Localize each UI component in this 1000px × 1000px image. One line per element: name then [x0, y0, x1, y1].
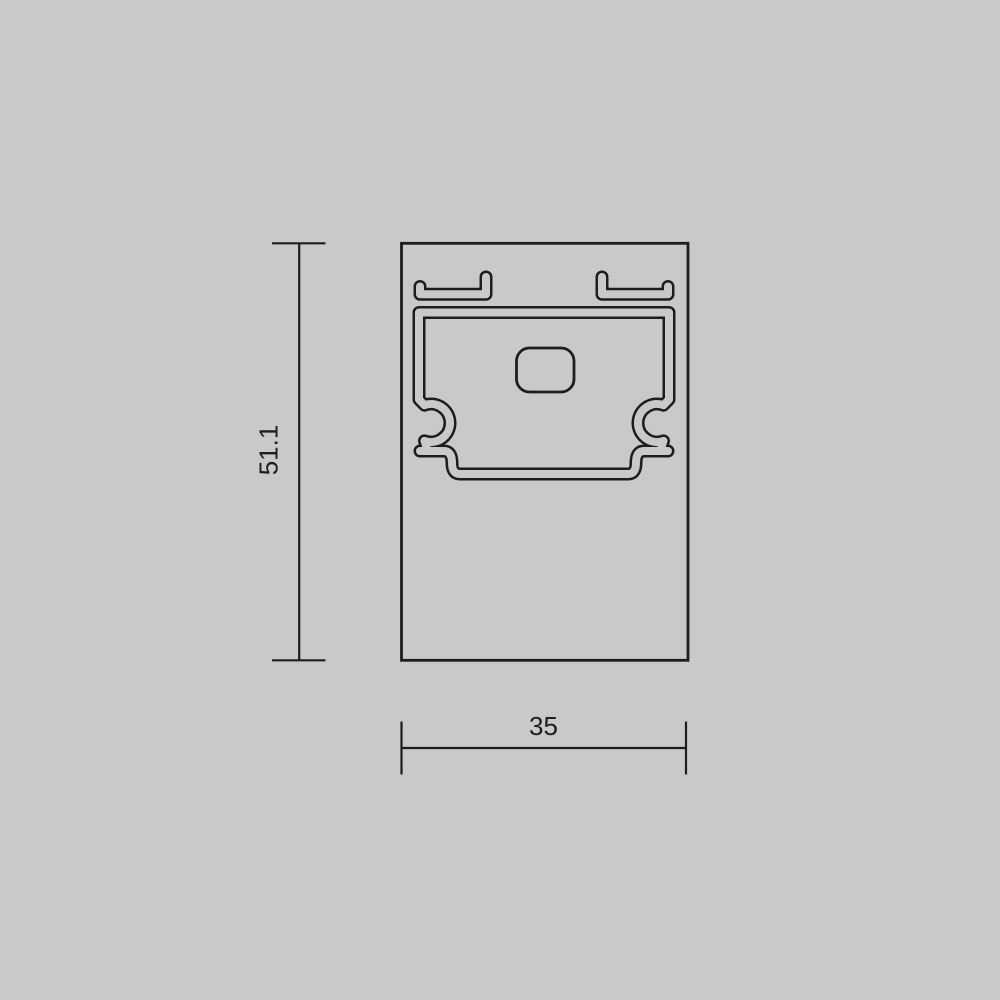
height-dimension-label: 51.1: [254, 425, 284, 476]
width-dimension-label: 35: [529, 711, 558, 741]
profile-wall-dark-pass: [419, 277, 669, 474]
left-hook-inner: [420, 277, 486, 294]
center-slot: [517, 348, 575, 392]
right-hook-inner: [602, 277, 668, 294]
channel-side-outline: [419, 313, 669, 448]
profile-outline: [402, 243, 689, 660]
technical-drawing-canvas: 51.1 35: [0, 0, 1000, 1000]
drawing-page: 51.1 35: [0, 0, 1000, 1000]
channel-side-inner: [419, 313, 669, 448]
